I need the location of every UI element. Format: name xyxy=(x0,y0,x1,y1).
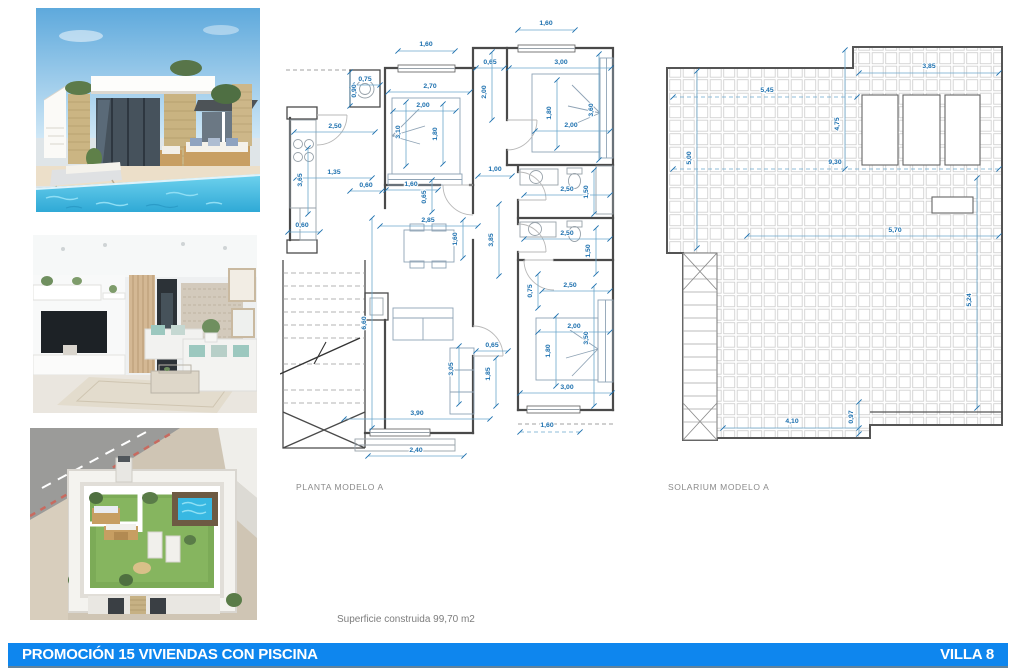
photo-living-room-interior xyxy=(33,235,257,413)
dimension-label: 1,60 xyxy=(419,41,432,48)
dimension-label: 0,65 xyxy=(421,190,428,203)
dimension-label: 2,00 xyxy=(416,102,429,109)
solarium-plan-drawing: 3,855,454,755,009,305,705,244,100,97 xyxy=(655,38,1015,470)
dimension-label: 3,85 xyxy=(922,63,935,70)
dimension-label: 0,60 xyxy=(295,222,308,229)
dimension-label: 1,80 xyxy=(545,344,552,357)
dimension-label: 1,50 xyxy=(583,185,590,198)
dimension-label: 0,75 xyxy=(527,284,534,297)
dimension-label: 3,85 xyxy=(488,233,495,246)
rooftop-aerial-illustration xyxy=(30,428,257,620)
photo-rooftop-solarium-aerial xyxy=(30,428,257,620)
dimension-label: 1,60 xyxy=(539,20,552,27)
dimension-label: 1,80 xyxy=(546,106,553,119)
dimension-label: 2,00 xyxy=(567,323,580,330)
footer-promotion-title: PROMOCIÓN 15 VIVIENDAS CON PISCINA xyxy=(22,646,318,663)
dimension-label: 1,60 xyxy=(540,422,553,429)
dimension-label: 2,00 xyxy=(564,122,577,129)
dimension-label: 0,65 xyxy=(483,59,496,66)
roof-plan-solarium: 3,855,454,755,009,305,705,244,100,97 xyxy=(655,38,1015,470)
dimension-label: 6,60 xyxy=(361,316,368,329)
dimension-label: 0,60 xyxy=(359,182,372,189)
dimension-label: 2,50 xyxy=(560,186,573,193)
dimension-label: 3,10 xyxy=(395,125,402,138)
villa-exterior-illustration xyxy=(36,8,260,212)
dimension-label: 3,05 xyxy=(448,362,455,375)
floor-plan-planta: 1,601,600,653,000,750,902,702,002,001,80… xyxy=(280,8,625,473)
dimension-label: 2,00 xyxy=(481,85,488,98)
dimension-label: 3,50 xyxy=(583,331,590,344)
dimension-label: 0,97 xyxy=(848,410,855,423)
dimension-label: 2,85 xyxy=(421,217,434,224)
dimension-label: 5,45 xyxy=(760,87,773,94)
dimension-label: 3,00 xyxy=(554,59,567,66)
dimension-label: 0,65 xyxy=(485,342,498,349)
planta-label: PLANTA MODELO A xyxy=(296,482,384,492)
surface-area-note: Superficie construida 99,70 m2 xyxy=(337,614,475,625)
dimension-label: 5,00 xyxy=(686,151,693,164)
dimension-label: 1,35 xyxy=(327,169,340,176)
dimension-label: 3,90 xyxy=(410,410,423,417)
brochure-page: 1,601,600,653,000,750,902,702,002,001,80… xyxy=(0,0,1020,670)
dimension-label: 1,50 xyxy=(585,244,592,257)
dimension-label: 1,00 xyxy=(488,166,501,173)
dimension-label: 2,50 xyxy=(560,230,573,237)
living-room-illustration xyxy=(33,235,257,413)
dimension-label: 4,10 xyxy=(785,418,798,425)
dimension-label: 5,24 xyxy=(966,293,973,306)
dimension-label: 1,85 xyxy=(485,367,492,380)
dimension-label: 3,65 xyxy=(297,173,304,186)
dimension-label: 0,90 xyxy=(351,84,358,97)
dimension-label: 2,50 xyxy=(328,123,341,130)
dimension-label: 2,50 xyxy=(563,282,576,289)
dimension-label: 3,00 xyxy=(560,384,573,391)
planta-plan-drawing: 1,601,600,653,000,750,902,702,002,001,80… xyxy=(280,8,625,473)
photo-villa-exterior-pool xyxy=(36,8,260,212)
solarium-label: SOLARIUM MODELO A xyxy=(668,482,769,492)
dimension-label: 1,60 xyxy=(452,232,459,245)
footer-bar: PROMOCIÓN 15 VIVIENDAS CON PISCINA VILLA… xyxy=(8,643,1008,668)
dimension-label: 1,60 xyxy=(404,181,417,188)
dimension-label: 9,30 xyxy=(828,159,841,166)
dimension-label: 5,70 xyxy=(888,227,901,234)
dimension-label: 3,60 xyxy=(588,103,595,116)
dimension-label: 2,70 xyxy=(423,83,436,90)
dimension-label: 2,40 xyxy=(409,447,422,454)
dimension-label: 0,75 xyxy=(358,76,371,83)
footer-villa-number: VILLA 8 xyxy=(940,646,994,663)
dimension-label: 1,80 xyxy=(432,127,439,140)
dimension-label: 4,75 xyxy=(834,117,841,130)
